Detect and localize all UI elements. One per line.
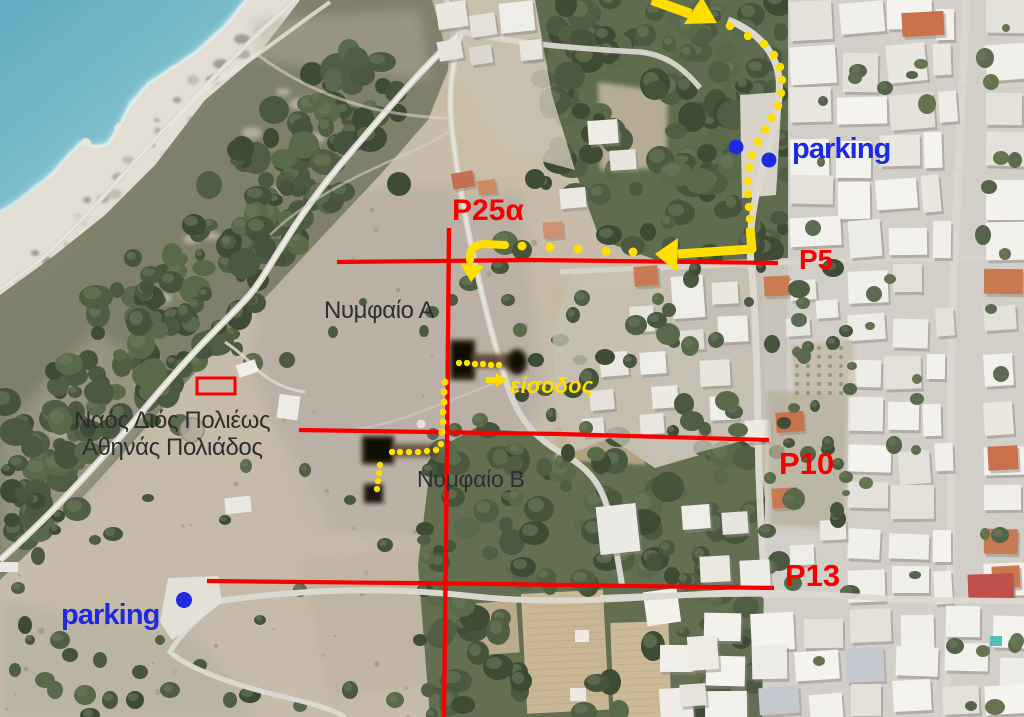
svg-text:P10: P10: [779, 446, 834, 481]
svg-text:Αθηνάς Πολιάδος: Αθηνάς Πολιάδος: [82, 434, 263, 461]
svg-text:P25α: P25α: [452, 194, 524, 227]
svg-text:P5: P5: [799, 244, 833, 275]
svg-text:είσοδος: είσοδος: [510, 373, 594, 398]
svg-text:parking: parking: [61, 599, 159, 631]
svg-text:Νυμφαίο Β: Νυμφαίο Β: [417, 466, 525, 492]
svg-text:P13: P13: [785, 558, 840, 593]
svg-text:Νυμφαίο Α: Νυμφαίο Α: [324, 297, 435, 324]
svg-text:parking: parking: [792, 133, 890, 165]
svg-text:Ναός Διός Πολιέως: Ναός Διός Πολιέως: [74, 407, 270, 434]
